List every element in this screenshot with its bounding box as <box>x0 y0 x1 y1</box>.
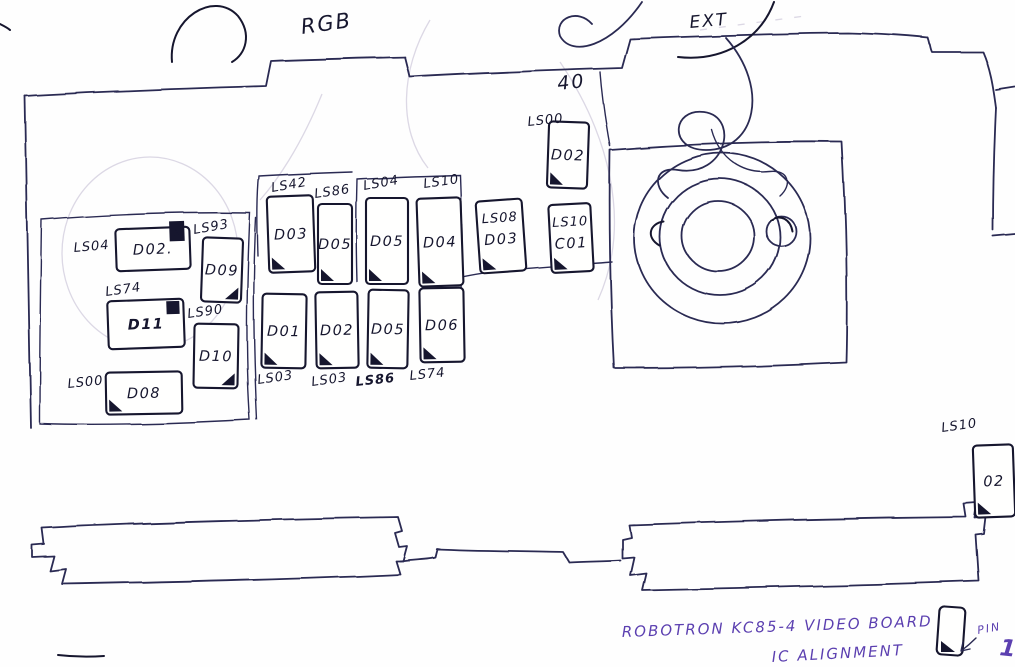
chip-type-label: LS10 <box>940 416 978 436</box>
chip-type-label: LS00 <box>67 373 104 392</box>
edge-connectors <box>32 503 986 590</box>
chip-designator: D03 <box>484 231 519 249</box>
chip-designator: D09 <box>205 262 240 279</box>
board-outline <box>25 33 1015 562</box>
ic-chip: D10LS90 <box>186 302 238 388</box>
board-top-edge <box>25 33 928 96</box>
ic-chip: D03LS08 <box>476 198 527 273</box>
ic-chip: 02LS10 <box>940 416 1015 518</box>
chip-designator: D11 <box>127 316 164 333</box>
chip-designator: D06 <box>425 318 459 335</box>
chip-type-label: LS86 <box>355 371 396 390</box>
chip-designator: D01 <box>267 324 301 341</box>
board-edge-stub <box>996 87 1015 90</box>
chip-type-label: LS04 <box>73 238 110 256</box>
coil-ring-middle <box>660 179 780 295</box>
doodle-circle-top-left <box>172 6 246 62</box>
chip-type-label: LS93 <box>192 217 230 238</box>
ic-chip: D02LS03 <box>310 292 358 390</box>
kc85-video-board-sketch: ND02.LS04D09LS93D11LS74D10LS90D08LS00D03… <box>0 0 1015 667</box>
chip-designator: D05 <box>371 322 405 339</box>
left-box-double-edge <box>254 218 257 420</box>
ic-chip: D03LS42 <box>267 175 316 273</box>
connector-strip-left <box>32 517 407 584</box>
chip-type-label: LS42 <box>270 175 308 196</box>
bottom-left-mark <box>58 655 104 657</box>
caption-line2: IC ALIGNMENT <box>771 641 904 666</box>
coil-box <box>610 142 847 368</box>
chip-designator: D02 <box>320 323 354 340</box>
coil-hook <box>651 222 664 246</box>
scanned-sketch-page: ND02.LS04D09LS93D11LS74D10LS90D08LS00D03… <box>0 0 1015 667</box>
doodle-spring <box>658 38 752 198</box>
ic-chips-layer: ND02.LS04D09LS93D11LS74D10LS90D08LS00D03… <box>67 111 1015 517</box>
edge-smudge <box>0 24 10 30</box>
board-left-edge <box>25 96 31 428</box>
pin-number: 1 <box>998 635 1015 663</box>
ic-chip: ND02.LS04 <box>73 221 191 271</box>
pin-label: PIN <box>976 620 1002 637</box>
chip-designator: D02. <box>133 241 174 258</box>
chip-designator: D05 <box>370 234 404 250</box>
dip40-label: 40 <box>556 70 586 95</box>
chip-type-label: LS04 <box>362 173 400 194</box>
chip-designator: D05 <box>318 237 352 253</box>
chip-designator: D04 <box>423 234 458 251</box>
chip-type-label: LS08 <box>481 210 518 227</box>
ic-chip: C01LS10 <box>548 203 594 273</box>
chip-type-label: LS74 <box>104 280 142 300</box>
chip-designator: D02 <box>551 147 586 164</box>
caption-line1: ROBOTRON KC85-4 VIDEO BOARD <box>622 612 933 641</box>
chip-designator: D03 <box>274 226 309 243</box>
ic-chip: D05LS86 <box>313 182 352 284</box>
ext-label: EXT <box>689 10 729 33</box>
chip-designator: D08 <box>127 386 161 403</box>
coil-ring-inner <box>682 201 754 271</box>
pin1-legend: PIN 1 <box>936 606 1015 663</box>
ic-chip: D05LS04 <box>362 173 408 284</box>
ic-chip: D11LS74 <box>104 280 184 349</box>
chip-type-label: LS86 <box>313 182 351 202</box>
chip-type-label: LS03 <box>256 368 294 388</box>
chip-designator: D10 <box>199 349 233 366</box>
ic-chip: D08LS00 <box>67 371 183 414</box>
board-right-edge <box>993 108 996 230</box>
ic-chip: D02LS00 <box>527 111 589 188</box>
ic-chip: D06LS74 <box>409 288 465 384</box>
chip-type-label: LS03 <box>310 370 348 390</box>
board-top-right-corner <box>928 38 996 108</box>
connector-line <box>600 72 610 146</box>
modulator-box <box>610 130 847 368</box>
chip-designator: 02 <box>983 474 1005 491</box>
chip-type-label: LS10 <box>422 172 460 192</box>
pin1-box-mark <box>166 301 179 314</box>
notch-letter: N <box>173 226 182 239</box>
board-right-step <box>993 234 1015 236</box>
rgb-label: RGB <box>299 8 353 39</box>
chip-type-label: LS74 <box>409 365 446 384</box>
ic-chip: D05LS86 <box>355 290 409 390</box>
connector-strip-right <box>622 503 986 590</box>
ic-chip: D04LS10 <box>416 172 463 287</box>
ic-chip: D01LS03 <box>256 294 306 388</box>
pencil-arc <box>406 20 430 168</box>
board-bottom-edge-middle <box>400 549 620 562</box>
chip-type-label: LS10 <box>552 214 589 231</box>
chip-designator: C01 <box>554 235 588 253</box>
chip-type-label: LS90 <box>186 302 224 322</box>
